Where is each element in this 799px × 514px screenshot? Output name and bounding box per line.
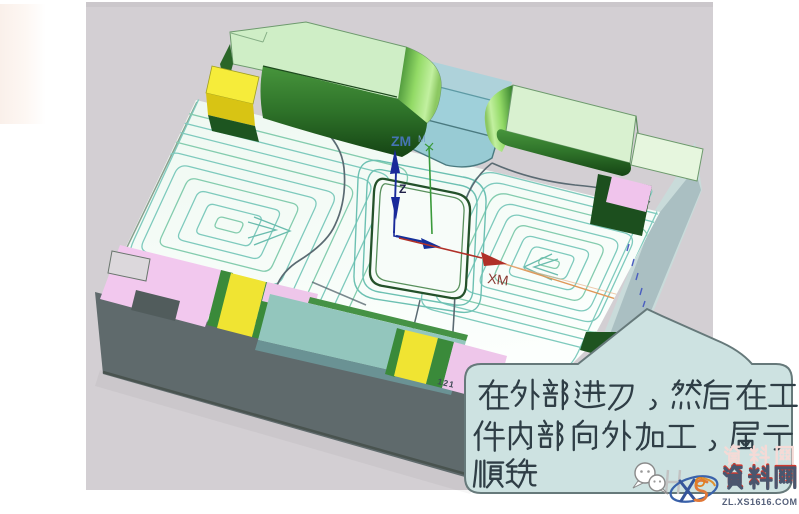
svg-text:ZL.XS1616.COM: ZL.XS1616.COM	[722, 497, 798, 507]
svg-text:M: M	[418, 134, 426, 144]
svg-text:XM: XM	[487, 270, 510, 288]
svg-text:ZM: ZM	[391, 133, 411, 149]
svg-text:Z: Z	[399, 182, 406, 196]
